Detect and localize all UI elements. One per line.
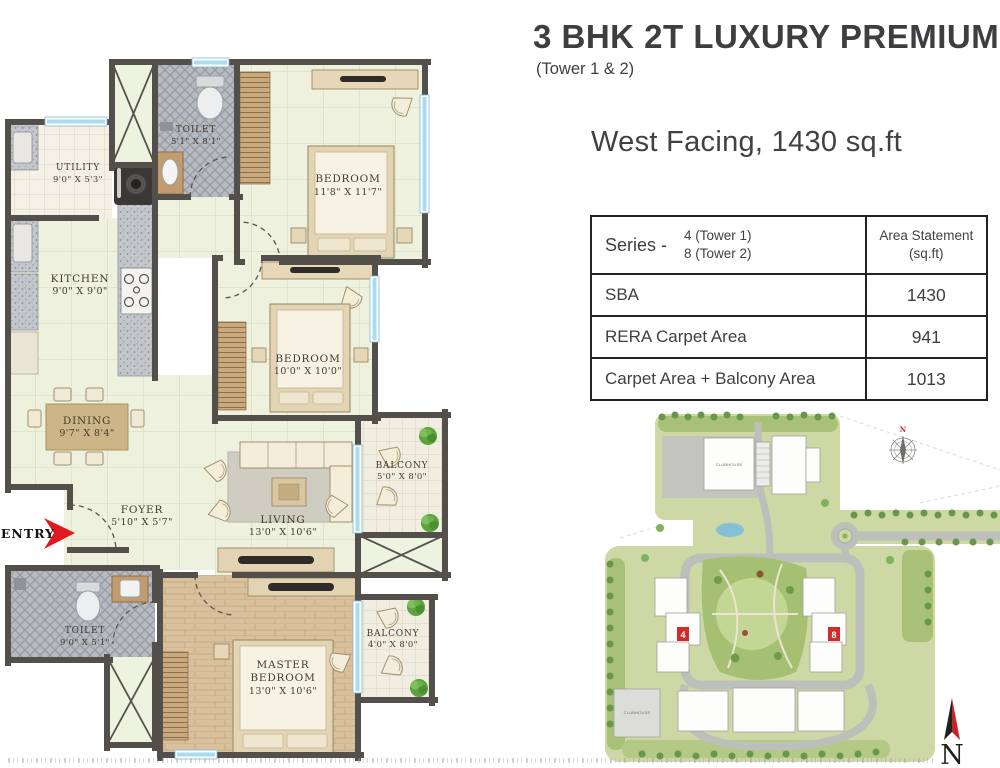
table-row: SBA 1430 — [592, 273, 986, 315]
label-balcony1: BALCONY — [376, 461, 429, 471]
brochure-page: TOILET 5'1" X 8'1" BEDROOM 11'8" X 11'7"… — [0, 0, 1000, 768]
label-bedroom1: BEDROOM — [315, 173, 380, 185]
north-arrow-icon: N — [940, 698, 964, 768]
svg-text:11'8" X 11'7": 11'8" X 11'7" — [314, 187, 382, 198]
tower1-marker: 4 — [680, 630, 685, 640]
svg-text:10'0" X 10'0": 10'0" X 10'0" — [274, 366, 342, 377]
label-toilet-bottom: TOILET — [65, 626, 105, 636]
wardrobe-bedroom1 — [240, 72, 270, 184]
label-foyer: FOYER — [121, 504, 164, 516]
window-bedroom1 — [420, 95, 429, 213]
stove — [121, 268, 152, 314]
tower-2 — [803, 578, 835, 616]
building-south-1 — [678, 691, 728, 731]
window-utility — [45, 117, 107, 126]
wardrobe-bedroom2 — [218, 322, 246, 410]
facing-heading: West Facing, 1430 sq.ft — [591, 126, 902, 159]
svg-text:BEDROOM: BEDROOM — [250, 672, 315, 684]
svg-text:5'0" X 8'0": 5'0" X 8'0" — [377, 472, 427, 482]
table-header-row: Series - 4 (Tower 1) 8 (Tower 2) Area St… — [592, 217, 986, 273]
svg-text:5'1" X 8'1": 5'1" X 8'1" — [171, 137, 221, 147]
label-master: MASTER — [257, 659, 310, 671]
pond — [716, 523, 744, 537]
label-utility: UTILITY — [56, 163, 100, 173]
label-toilet-top: TOILET — [176, 125, 216, 135]
svg-text:5'10" X 5'7": 5'10" X 5'7" — [111, 517, 173, 528]
svg-text:9'0" X 5'3": 9'0" X 5'3" — [53, 175, 103, 185]
window-bedroom2 — [370, 276, 379, 342]
row-value-sba: 1430 — [865, 275, 986, 315]
tower2-marker: 8 — [831, 630, 836, 640]
wc-tank — [196, 76, 224, 87]
floor-plan: TOILET 5'1" X 8'1" BEDROOM 11'8" X 11'7"… — [0, 0, 470, 768]
compass-rose-icon: N — [889, 425, 917, 464]
wardrobe-master — [162, 652, 188, 740]
value-header-line1: Area Statement — [879, 227, 973, 245]
clubhouse-south-label: CLUBHOUSE — [624, 710, 651, 715]
label-bedroom2: BEDROOM — [275, 353, 340, 365]
central-park — [702, 556, 808, 680]
svg-text:9'0" X 5'1": 9'0" X 5'1" — [60, 638, 110, 648]
row-label-carpet: Carpet Area + Balcony Area — [592, 359, 865, 399]
window-toilet-top — [192, 58, 229, 67]
table-row: RERA Carpet Area 941 — [592, 315, 986, 357]
row-label-sba: SBA — [592, 275, 865, 315]
clubhouse-north-label: CLUBHOUSE — [716, 462, 743, 467]
page-subtitle: (Tower 1 & 2) — [536, 60, 634, 79]
series-tower1: 4 (Tower 1) — [684, 227, 752, 245]
svg-text:13'0" X 10'6": 13'0" X 10'6" — [249, 686, 317, 697]
row-value-rera: 941 — [865, 317, 986, 357]
tower-1 — [655, 578, 687, 616]
svg-text:9'7" X 8'4": 9'7" X 8'4" — [59, 428, 114, 439]
page-title: 3 BHK 2T LUXURY PREMIUM — [533, 18, 1000, 56]
label-dining: DINING — [63, 415, 111, 427]
north-letter: N — [940, 740, 964, 768]
area-statement-table: Series - 4 (Tower 1) 8 (Tower 2) Area St… — [590, 215, 988, 401]
wc-top — [197, 87, 223, 119]
window-living-balcony — [353, 445, 362, 533]
wc-bottom — [76, 591, 100, 621]
label-balcony2: BALCONY — [367, 629, 420, 639]
label-living: LIVING — [260, 514, 305, 526]
label-kitchen: KITCHEN — [51, 273, 110, 285]
cropped-disclaimer-strip — [8, 758, 933, 763]
table-row: Carpet Area + Balcony Area 1013 — [592, 357, 986, 399]
row-value-carpet: 1013 — [865, 359, 986, 399]
shelf — [160, 122, 173, 131]
building-north-east — [772, 436, 806, 494]
dining-table — [46, 404, 128, 450]
master-site-plan: CLUBHOUSE CLUBHOUSE 4 8 — [600, 408, 1000, 768]
compass-n-label: N — [900, 425, 907, 434]
svg-text:4'0" X 8'0": 4'0" X 8'0" — [368, 640, 418, 650]
entry-label: ENTRY — [1, 526, 55, 541]
building-south-2 — [733, 688, 795, 732]
value-header-line2: (sq.ft) — [909, 245, 944, 263]
building-south-3 — [798, 691, 844, 731]
svg-text:13'0" X 10'6": 13'0" X 10'6" — [249, 527, 317, 538]
series-label: Series - — [605, 235, 667, 256]
svg-text:9'0" X 9'0": 9'0" X 9'0" — [52, 286, 107, 297]
series-tower2: 8 (Tower 2) — [684, 245, 752, 263]
window-master-balcony — [353, 601, 362, 693]
row-label-rera: RERA Carpet Area — [592, 317, 865, 357]
